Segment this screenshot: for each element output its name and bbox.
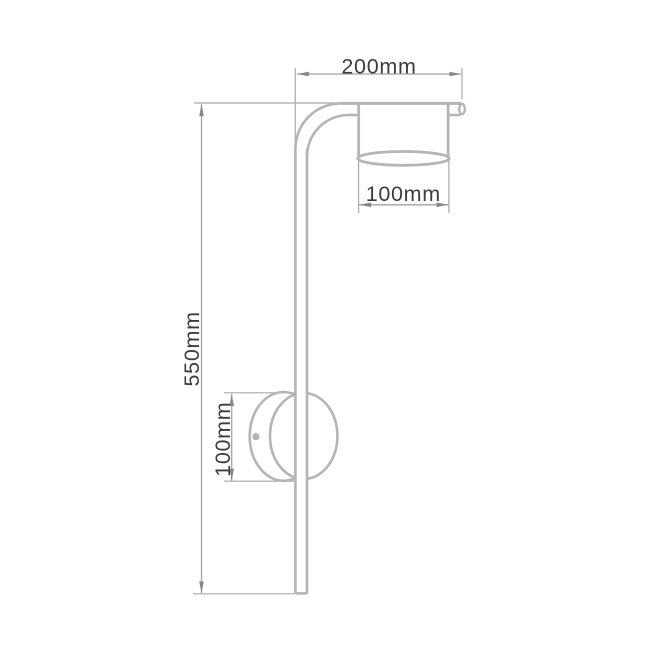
svg-text:100mm: 100mm: [211, 402, 235, 477]
svg-text:550mm: 550mm: [180, 311, 204, 386]
svg-text:200mm: 200mm: [341, 54, 416, 78]
svg-text:100mm: 100mm: [366, 182, 441, 206]
